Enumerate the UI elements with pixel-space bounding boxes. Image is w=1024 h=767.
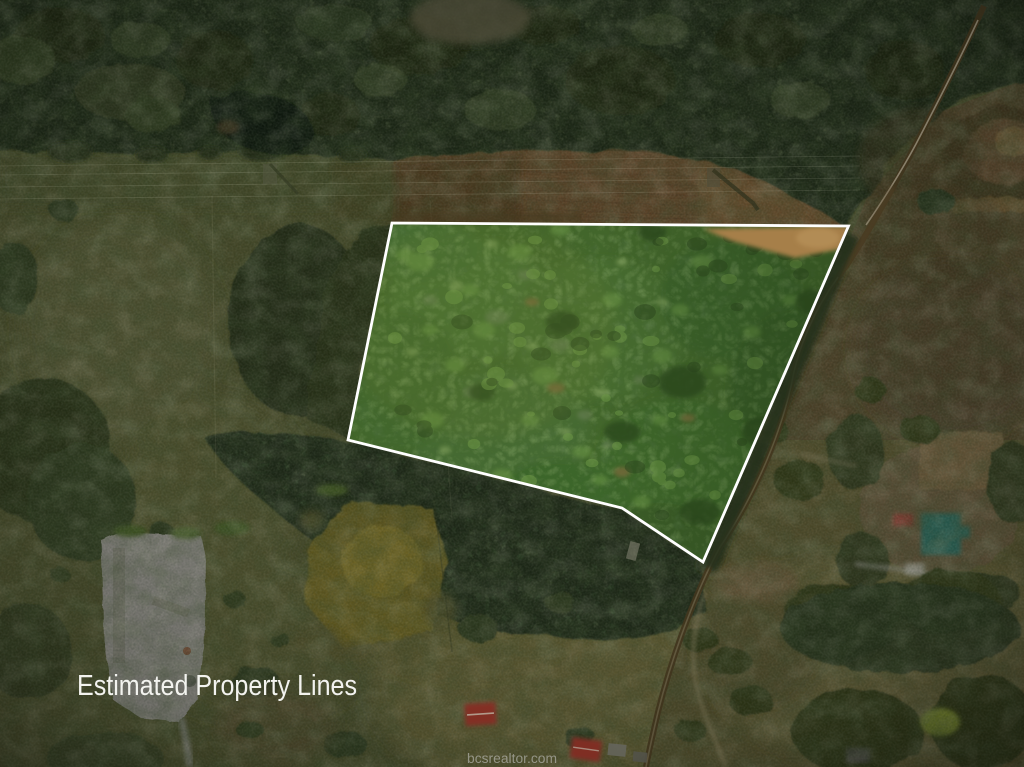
svg-text:bcsrealtor.com: bcsrealtor.com xyxy=(467,751,557,766)
svg-text:Estimated Property Lines: Estimated Property Lines xyxy=(77,670,357,702)
